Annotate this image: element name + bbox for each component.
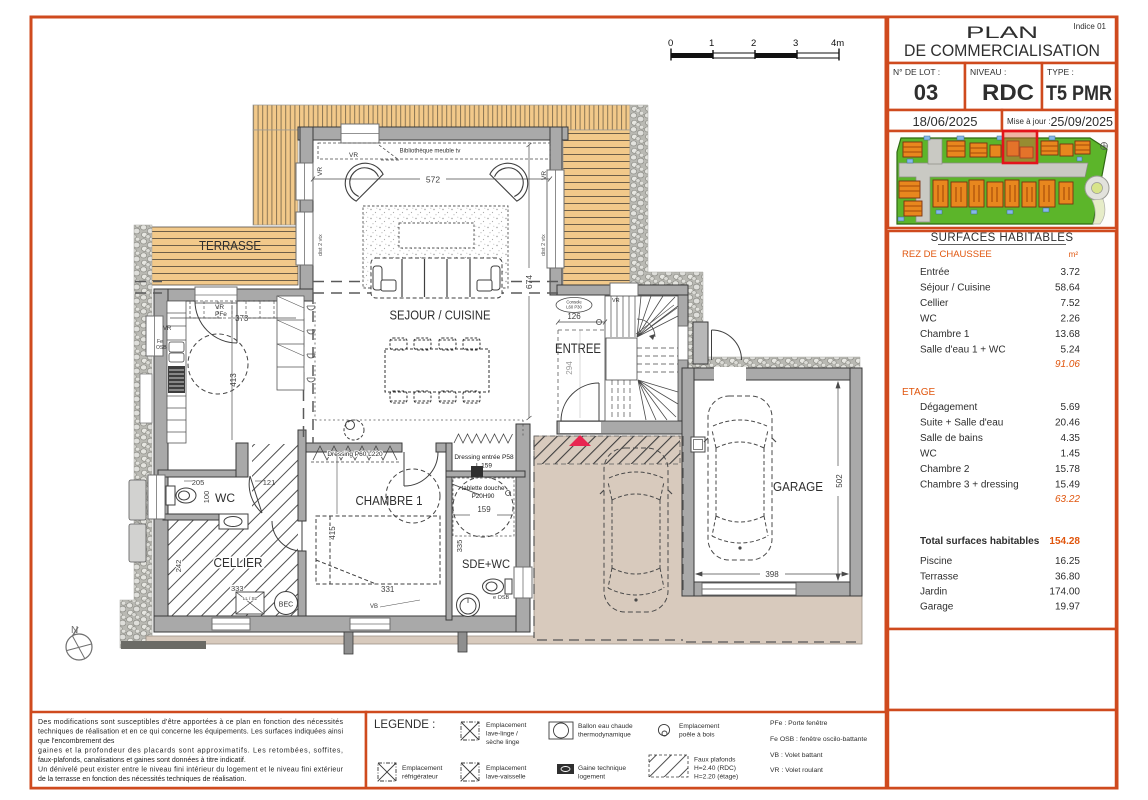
svg-text:ETAGE: ETAGE: [902, 387, 935, 398]
svg-text:WC: WC: [920, 314, 937, 325]
svg-text:674: 674: [524, 275, 534, 289]
svg-text:20.46: 20.46: [1055, 418, 1080, 429]
svg-text:thermodynamique: thermodynamique: [578, 732, 631, 739]
svg-text:Un dénivelé peut exister entre: Un dénivelé peut exister entre le niveau…: [38, 767, 344, 774]
svg-text:Salle de bains: Salle de bains: [920, 433, 983, 444]
svg-text:174.00: 174.00: [1049, 587, 1080, 598]
svg-text:205: 205: [192, 478, 205, 487]
svg-text:3.72: 3.72: [1061, 267, 1081, 278]
svg-text:Emplacement: Emplacement: [402, 765, 442, 772]
svg-text:Suite + Salle d'eau: Suite + Salle d'eau: [920, 418, 1003, 429]
svg-text:16.25: 16.25: [1055, 556, 1080, 567]
svg-text:NIVEAU :: NIVEAU :: [970, 67, 1006, 77]
svg-text:VB : Volet battant: VB : Volet battant: [770, 752, 823, 759]
svg-text:PFe : Porte fenêtre: PFe : Porte fenêtre: [770, 720, 828, 727]
svg-text:techniques de réalisation et e: techniques de réalisation et en ce qui c…: [38, 729, 343, 736]
svg-text:58.64: 58.64: [1055, 283, 1080, 294]
svg-text:63.22: 63.22: [1055, 494, 1080, 505]
svg-text:5.69: 5.69: [1061, 402, 1081, 413]
svg-text:RDC: RDC: [982, 80, 1034, 105]
svg-text:Gaine technique: Gaine technique: [578, 765, 626, 772]
svg-text:de la terrasse en fonction des: de la terrasse en fonction des nécessité…: [38, 776, 246, 783]
svg-text:BEC: BEC: [279, 602, 293, 609]
svg-text:lave-linge /: lave-linge /: [486, 731, 518, 738]
svg-text:VR: VR: [215, 304, 224, 311]
svg-text:100: 100: [202, 491, 211, 504]
svg-text:réfrigérateur: réfrigérateur: [402, 774, 439, 781]
svg-text:Chambre 2: Chambre 2: [920, 464, 970, 475]
svg-text:5.24: 5.24: [1061, 345, 1081, 356]
svg-text:25/09/2025: 25/09/2025: [1050, 115, 1113, 129]
svg-text:SEJOUR / CUISINE: SEJOUR / CUISINE: [390, 308, 491, 323]
svg-text:331: 331: [381, 585, 395, 594]
svg-text:VR: VR: [349, 152, 358, 159]
svg-text:Bibliothèque meuble tv: Bibliothèque meuble tv: [400, 149, 461, 155]
svg-text:Chambre 3 + dressing: Chambre 3 + dressing: [920, 480, 1019, 491]
svg-text:LEGENDE :: LEGENDE :: [374, 719, 435, 731]
svg-text:413: 413: [229, 373, 238, 387]
svg-text:2.26: 2.26: [1061, 314, 1081, 325]
svg-text:OSB: OSB: [156, 345, 167, 351]
svg-text:SURFACES HABITABLES: SURFACES HABITABLES: [931, 232, 1074, 244]
svg-text:Jardin: Jardin: [920, 587, 947, 598]
svg-text:sèche linge: sèche linge: [486, 739, 520, 746]
svg-text:Entrée: Entrée: [920, 267, 950, 278]
svg-text:4m: 4m: [831, 38, 844, 49]
svg-text:que l'encombrement des: que l'encombrement des: [38, 738, 115, 745]
svg-text:logement: logement: [578, 774, 605, 781]
svg-text:L60 P30: L60 P30: [566, 305, 582, 310]
svg-text:159: 159: [477, 505, 491, 514]
svg-text:373: 373: [235, 314, 249, 323]
svg-text:ENTREE: ENTREE: [555, 341, 601, 356]
svg-text:154.28: 154.28: [1049, 536, 1080, 547]
svg-text:13.68: 13.68: [1055, 329, 1080, 340]
svg-text:19.97: 19.97: [1055, 602, 1080, 613]
svg-text:PLAN: PLAN: [966, 24, 1038, 42]
svg-text:Dressing P60 L220: Dressing P60 L220: [327, 451, 383, 458]
svg-text:VB: VB: [370, 604, 378, 610]
svg-text:0: 0: [668, 38, 673, 49]
svg-text:TYPE :: TYPE :: [1047, 67, 1074, 77]
svg-text:Emplacement: Emplacement: [486, 722, 526, 729]
svg-text:REZ DE CHAUSSEE: REZ DE CHAUSSEE: [902, 249, 992, 260]
svg-text:VR: VR: [163, 326, 172, 332]
svg-text:1: 1: [709, 38, 714, 49]
svg-text:Séjour / Cuisine: Séjour / Cuisine: [920, 283, 991, 294]
svg-text:GARAGE: GARAGE: [773, 480, 823, 494]
svg-text:415: 415: [328, 526, 337, 540]
svg-text:VR: VR: [541, 171, 548, 180]
svg-text:CELLIER: CELLIER: [214, 556, 263, 570]
svg-text:Chambre 1: Chambre 1: [920, 329, 970, 340]
svg-text:03: 03: [914, 80, 938, 105]
svg-text:poêle à bois: poêle à bois: [679, 732, 715, 739]
svg-text:dist 2 vtx: dist 2 vtx: [541, 234, 547, 256]
svg-text:VR : Volet roulant: VR : Volet roulant: [770, 767, 823, 774]
svg-text:m²: m²: [1069, 250, 1079, 259]
svg-text:Dégagement: Dégagement: [920, 402, 977, 413]
svg-text:2: 2: [751, 38, 756, 49]
svg-text:398: 398: [765, 570, 779, 579]
svg-text:Cellier: Cellier: [920, 298, 949, 309]
svg-text:18/06/2025: 18/06/2025: [912, 114, 977, 129]
svg-text:N: N: [71, 625, 78, 636]
svg-text:15.78: 15.78: [1055, 464, 1080, 475]
svg-text:e OSB: e OSB: [493, 595, 510, 601]
svg-text:VR: VR: [612, 298, 620, 304]
svg-text:Fe OSB : fenêtre oscilo-battan: Fe OSB : fenêtre oscilo-battante: [770, 736, 867, 743]
svg-text:502: 502: [835, 474, 844, 488]
svg-text:PFe: PFe: [215, 311, 227, 318]
svg-text:H=2.40 (RDC): H=2.40 (RDC): [694, 765, 736, 772]
svg-text:tablette douche: tablette douche: [461, 485, 505, 492]
svg-text:Terrasse: Terrasse: [920, 572, 959, 583]
svg-text:T5 PMR: T5 PMR: [1046, 82, 1112, 105]
svg-text:3: 3: [793, 38, 798, 49]
svg-text:Garage: Garage: [920, 602, 954, 613]
svg-text:Ballon eau chaude: Ballon eau chaude: [578, 723, 633, 730]
svg-text:4.35: 4.35: [1061, 433, 1081, 444]
svg-text:WC: WC: [920, 449, 937, 460]
svg-text:N° DE LOT :: N° DE LOT :: [893, 67, 940, 77]
svg-text:91.06: 91.06: [1055, 359, 1080, 370]
svg-text:36.80: 36.80: [1055, 572, 1080, 583]
svg-text:CHAMBRE 1: CHAMBRE 1: [356, 494, 423, 508]
svg-text:242: 242: [174, 560, 183, 573]
svg-text:lave-vaisselle: lave-vaisselle: [486, 774, 526, 781]
svg-text:121: 121: [263, 478, 276, 487]
svg-text:DE COMMERCIALISATION: DE COMMERCIALISATION: [904, 42, 1100, 60]
svg-text:Dressing entrée P58: Dressing entrée P58: [454, 454, 514, 461]
svg-text:Mise à jour :: Mise à jour :: [1007, 117, 1051, 126]
svg-text:faux-plafonds, canalisations e: faux-plafonds, canalisations et gaines s…: [38, 757, 246, 764]
svg-text:Salle d'eau 1 + WC: Salle d'eau 1 + WC: [920, 345, 1006, 356]
svg-text:gaines et la profondeur des pl: gaines et la profondeur des placards son…: [38, 748, 343, 755]
svg-text:Emplacement: Emplacement: [679, 723, 719, 730]
svg-text:Piscine: Piscine: [920, 556, 953, 567]
svg-text:LL / SL: LL / SL: [243, 596, 258, 601]
svg-text:Indice 01: Indice 01: [1074, 22, 1107, 31]
svg-text:Faux plafonds: Faux plafonds: [694, 757, 736, 764]
svg-text:335: 335: [455, 540, 464, 553]
svg-text:WC: WC: [215, 491, 235, 505]
svg-text:VR: VR: [317, 167, 324, 176]
svg-text:dist 2 vtx: dist 2 vtx: [318, 234, 324, 256]
svg-text:Total surfaces habitables: Total surfaces habitables: [920, 536, 1040, 547]
svg-text:15.49: 15.49: [1055, 480, 1080, 491]
svg-text:7.52: 7.52: [1061, 298, 1081, 309]
svg-text:SDE+WC: SDE+WC: [462, 559, 510, 571]
svg-text:P20H90: P20H90: [472, 493, 495, 500]
svg-text:Des modifications sont suscept: Des modifications sont susceptibles d'êt…: [38, 719, 343, 726]
svg-text:126: 126: [567, 312, 581, 321]
svg-text:TERRASSE: TERRASSE: [199, 239, 261, 253]
svg-text:H=2.20 (étage): H=2.20 (étage): [694, 774, 738, 781]
svg-text:1.45: 1.45: [1061, 449, 1081, 460]
svg-text:572: 572: [426, 175, 440, 185]
svg-text:294: 294: [565, 361, 574, 375]
svg-text:Emplacement: Emplacement: [486, 765, 526, 772]
